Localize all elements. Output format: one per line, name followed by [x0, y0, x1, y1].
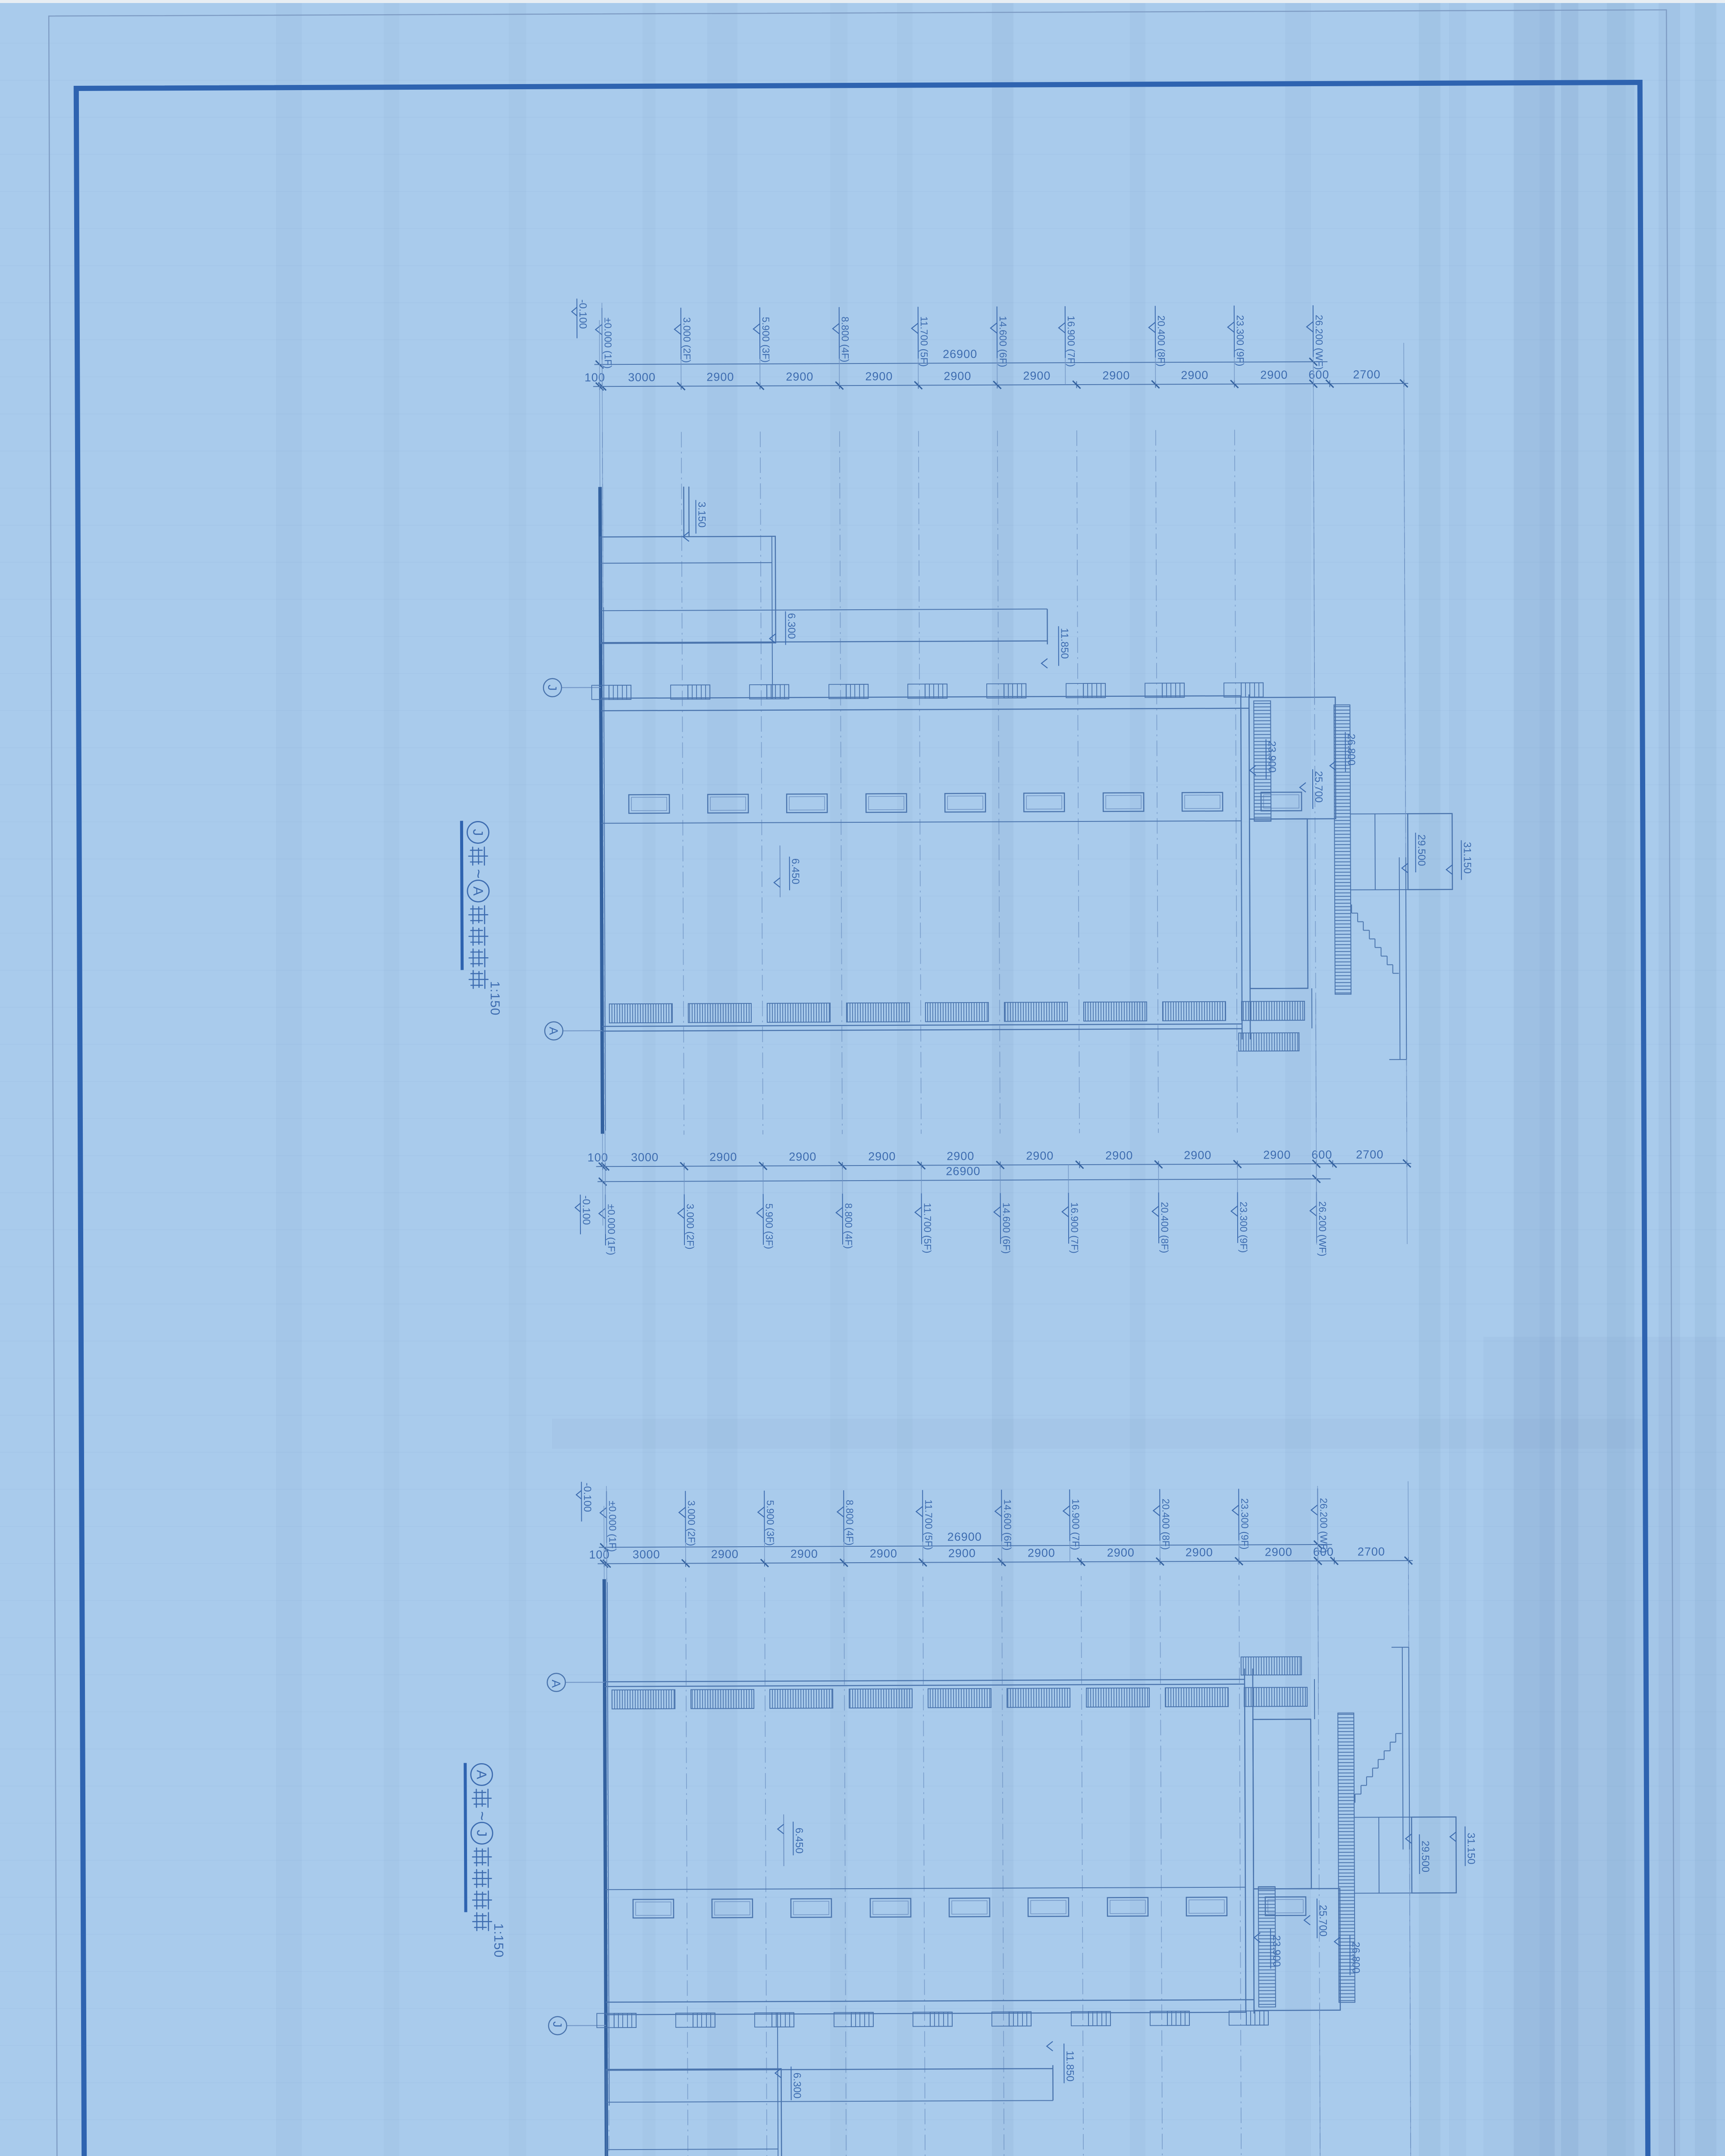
svg-text:20.400 (8F): 20.400 (8F) [1156, 315, 1167, 367]
svg-text:1:150: 1:150 [491, 1923, 505, 1958]
svg-text:16.900 (7F): 16.900 (7F) [1069, 1202, 1080, 1253]
svg-text:J: J [470, 829, 486, 836]
svg-text:2900: 2900 [944, 370, 971, 382]
svg-text:8.800 (4F): 8.800 (4F) [843, 1203, 854, 1249]
svg-text:6.300: 6.300 [785, 613, 797, 639]
svg-text:23.300 (9F): 23.300 (9F) [1239, 1498, 1250, 1550]
svg-text:26.800: 26.800 [1350, 1942, 1361, 1974]
svg-text:2900: 2900 [1263, 1148, 1291, 1161]
svg-text:2900: 2900 [868, 1150, 896, 1163]
svg-text:2900: 2900 [786, 370, 813, 383]
svg-text:2900: 2900 [711, 1548, 739, 1561]
svg-text:2700: 2700 [1358, 1545, 1385, 1558]
svg-text:J: J [546, 685, 559, 691]
svg-text:2900: 2900 [1265, 1545, 1292, 1558]
svg-text:31.150: 31.150 [1465, 1833, 1477, 1865]
svg-text:2900: 2900 [706, 370, 734, 383]
svg-text:3.150: 3.150 [696, 501, 707, 527]
svg-text:26.200 (WF): 26.200 (WF) [1318, 1498, 1329, 1553]
svg-text:14.600 (6F): 14.600 (6F) [997, 316, 1009, 367]
svg-text:23.900: 23.900 [1266, 741, 1278, 773]
svg-text:26900: 26900 [943, 348, 977, 360]
svg-text:26900: 26900 [946, 1165, 980, 1178]
svg-text:2900: 2900 [1028, 1546, 1055, 1559]
svg-text:26900: 26900 [947, 1530, 982, 1543]
svg-text:29.500: 29.500 [1419, 1841, 1431, 1873]
svg-text:11.700 (5F): 11.700 (5F) [922, 1203, 933, 1253]
svg-text:5.900 (3F): 5.900 (3F) [765, 1500, 776, 1546]
svg-text:5.900 (3F): 5.900 (3F) [764, 1203, 775, 1249]
svg-text:6.450: 6.450 [790, 859, 801, 884]
svg-text:2900: 2900 [709, 1150, 737, 1163]
svg-text:~: ~ [473, 1811, 491, 1821]
svg-text:2700: 2700 [1353, 368, 1380, 381]
svg-text:2900: 2900 [947, 1150, 974, 1163]
svg-text:3.000 (2F): 3.000 (2F) [685, 1203, 696, 1249]
svg-text:5.900 (3F): 5.900 (3F) [760, 317, 772, 363]
svg-text:16.900 (7F): 16.900 (7F) [1066, 316, 1077, 367]
svg-text:25.700: 25.700 [1317, 1905, 1329, 1937]
svg-text:±0.000 (1F): ±0.000 (1F) [607, 1501, 618, 1552]
svg-text:3000: 3000 [631, 1151, 659, 1164]
svg-text:26.800: 26.800 [1345, 734, 1357, 766]
svg-text:23.900: 23.900 [1270, 1935, 1282, 1967]
svg-text:25.700: 25.700 [1313, 771, 1324, 803]
svg-text:2900: 2900 [948, 1547, 976, 1560]
svg-text:2900: 2900 [1105, 1149, 1133, 1162]
svg-text:~: ~ [469, 869, 487, 878]
svg-text:3.000 (2F): 3.000 (2F) [681, 317, 693, 363]
svg-text:2900: 2900 [1184, 1149, 1211, 1162]
svg-text:11.700 (5F): 11.700 (5F) [919, 316, 930, 367]
svg-text:J: J [551, 2021, 564, 2028]
svg-text:2900: 2900 [790, 1547, 818, 1560]
svg-text:2900: 2900 [1102, 369, 1130, 382]
svg-text:3000: 3000 [633, 1548, 660, 1561]
svg-text:600: 600 [1311, 1148, 1332, 1161]
svg-text:11.700 (5F): 11.700 (5F) [923, 1499, 934, 1550]
svg-text:3000: 3000 [628, 371, 655, 384]
svg-text:26.200 (WF): 26.200 (WF) [1317, 1201, 1328, 1257]
svg-text:16.900 (7F): 16.900 (7F) [1070, 1499, 1081, 1550]
svg-text:±0.000 (1F): ±0.000 (1F) [602, 317, 614, 369]
svg-text:600: 600 [1308, 368, 1329, 381]
svg-text:A: A [547, 1027, 560, 1035]
svg-text:20.400 (8F): 20.400 (8F) [1160, 1498, 1171, 1550]
svg-text:A: A [470, 887, 486, 896]
svg-text:A: A [549, 1680, 563, 1688]
svg-text:20.400 (8F): 20.400 (8F) [1159, 1202, 1170, 1253]
svg-text:26.200 (WF): 26.200 (WF) [1314, 315, 1325, 370]
svg-text:±0.000 (1F): ±0.000 (1F) [606, 1204, 617, 1255]
svg-text:11.850: 11.850 [1059, 628, 1070, 659]
svg-text:6.450: 6.450 [793, 1827, 805, 1853]
svg-text:2900: 2900 [1181, 369, 1208, 382]
svg-text:11.850: 11.850 [1064, 2050, 1076, 2081]
svg-text:2900: 2900 [1260, 368, 1288, 381]
svg-text:2700: 2700 [1356, 1148, 1383, 1161]
svg-text:3.000 (2F): 3.000 (2F) [686, 1500, 697, 1546]
svg-text:-0.100: -0.100 [581, 1482, 593, 1512]
svg-text:2900: 2900 [1107, 1546, 1135, 1559]
svg-text:2900: 2900 [1023, 369, 1051, 382]
svg-text:1:150: 1:150 [488, 981, 502, 1015]
svg-text:2900: 2900 [870, 1547, 897, 1560]
svg-text:6.300: 6.300 [791, 2072, 803, 2098]
svg-text:2900: 2900 [789, 1150, 816, 1163]
svg-text:31.150: 31.150 [1462, 842, 1473, 874]
svg-text:8.800 (4F): 8.800 (4F) [840, 317, 851, 362]
svg-text:A: A [474, 1770, 489, 1780]
svg-text:29.500: 29.500 [1415, 834, 1427, 866]
svg-text:2900: 2900 [1026, 1149, 1054, 1162]
svg-text:8.800 (4F): 8.800 (4F) [844, 1500, 855, 1545]
svg-text:23.300 (9F): 23.300 (9F) [1238, 1202, 1249, 1253]
svg-text:J: J [474, 1830, 489, 1836]
svg-text:14.600 (6F): 14.600 (6F) [1001, 1203, 1012, 1254]
svg-text:-0.100: -0.100 [580, 1195, 592, 1225]
svg-text:2900: 2900 [1186, 1546, 1213, 1559]
svg-text:14.600 (6F): 14.600 (6F) [1002, 1499, 1013, 1551]
svg-text:2900: 2900 [865, 370, 893, 383]
svg-text:23.300 (9F): 23.300 (9F) [1235, 315, 1246, 367]
svg-text:-0.100: -0.100 [577, 299, 589, 329]
